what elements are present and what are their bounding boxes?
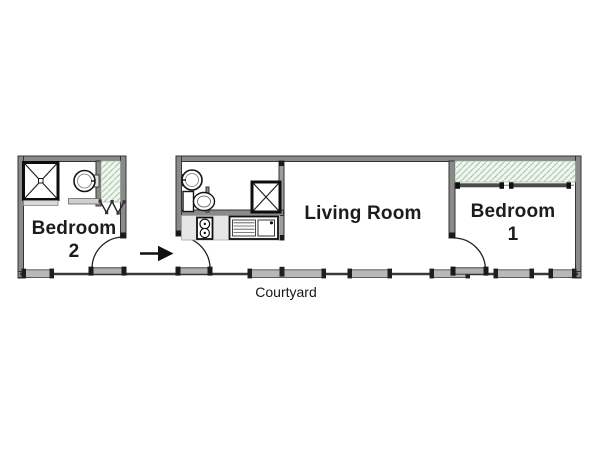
bedroom2-label-line1: Bedroom (32, 218, 117, 239)
bedroom1-label-line2: 1 (508, 224, 519, 245)
kitchen-sink-icon (230, 217, 279, 240)
window-bedroom1-1 (496, 270, 532, 278)
washbasin-bedroom2-icon (69, 171, 100, 205)
bedroom2-label: Bedroom 2 (24, 217, 124, 263)
wall-top-main (176, 156, 581, 162)
bedroom1-label-line1: Bedroom (471, 201, 556, 222)
stove-icon (197, 218, 213, 240)
courtyard-label: Courtyard (236, 285, 336, 300)
window-living-1 (350, 270, 390, 278)
washbasin-wc-icon (182, 170, 202, 190)
living-room-label: Living Room (288, 202, 438, 225)
floor-plan: Bedroom 2 Living Room Bedroom 1 Courtyar… (0, 0, 600, 450)
closet-bedroom1 (455, 161, 576, 189)
window-bedroom2 (23, 270, 52, 278)
toilet-icon (183, 192, 215, 212)
entry-arrow-icon (140, 246, 174, 261)
door-jambs (121, 161, 456, 240)
window-kitchen-living (250, 270, 324, 278)
wall-left-main (176, 156, 182, 236)
main-entry-door (176, 237, 213, 276)
shower-kitchen-icon (252, 182, 280, 212)
closet-bedroom2-hatch (101, 161, 121, 202)
shower-bedroom2-icon (24, 163, 59, 206)
bedroom1-label: Bedroom 1 (453, 200, 573, 246)
closet-bedroom1-hatch (455, 161, 576, 182)
wall-top-bedroom2 (18, 156, 126, 162)
window-bedroom1-2 (551, 270, 575, 278)
bedroom2-label-line2: 2 (69, 241, 80, 262)
wall-right-exterior (576, 156, 582, 278)
